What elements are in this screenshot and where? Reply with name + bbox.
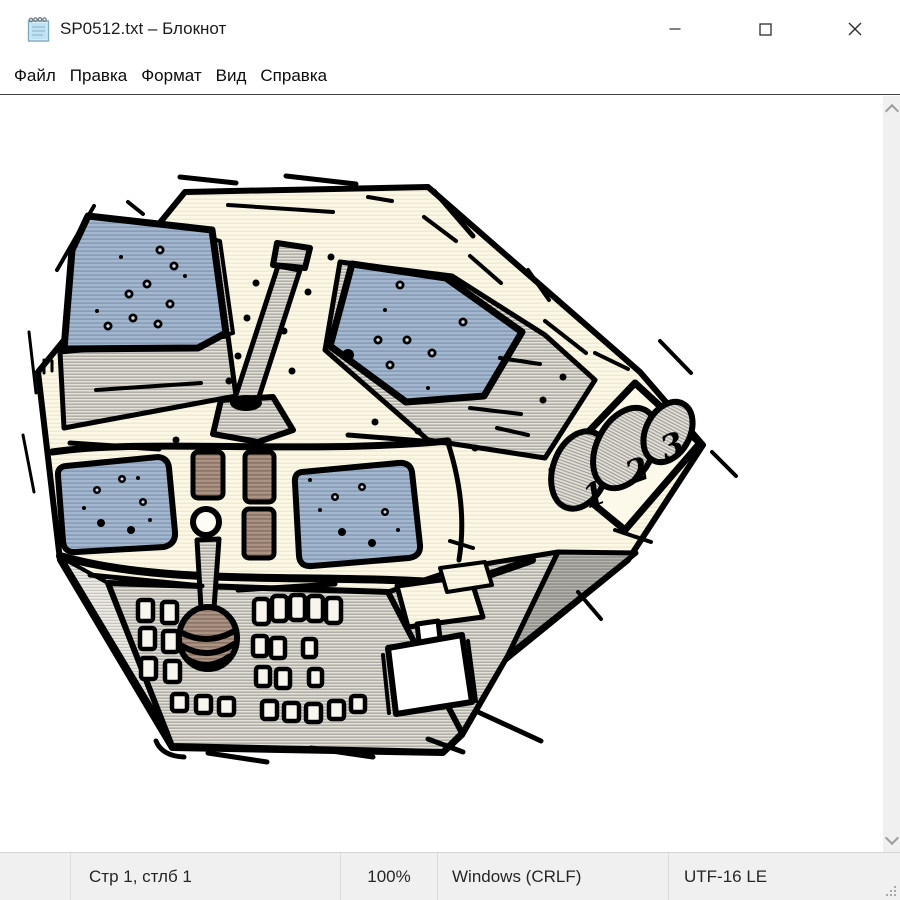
menu-bar: Файл Правка Формат Вид Справка (0, 58, 900, 94)
notepad-icon (26, 16, 51, 43)
maximize-icon (759, 23, 772, 36)
menu-view[interactable]: Вид (209, 66, 254, 86)
status-bar: Стр 1, стлб 1 100% Windows (CRLF) UTF-16… (0, 852, 900, 900)
menu-format[interactable]: Формат (134, 66, 208, 86)
text-editor-area[interactable] (0, 94, 900, 852)
status-encoding: UTF-16 LE (684, 867, 767, 887)
window-controls (630, 0, 900, 58)
vertical-scrollbar[interactable] (883, 96, 900, 852)
menu-file[interactable]: Файл (7, 66, 63, 86)
minimize-button[interactable] (630, 0, 720, 58)
status-spacer (0, 853, 71, 900)
close-button[interactable] (810, 0, 900, 58)
close-icon (848, 22, 862, 36)
menu-edit[interactable]: Правка (63, 66, 134, 86)
chevron-up-icon (884, 104, 898, 118)
title-bar: SP0512.txt – Блокнот (0, 0, 900, 58)
status-cursor-position: Стр 1, стлб 1 (71, 853, 341, 900)
notepad-window: SP0512.txt – Блокнот Файл Правка Формат … (0, 0, 900, 900)
menu-help[interactable]: Справка (253, 66, 334, 86)
status-line-endings: Windows (CRLF) (438, 853, 669, 900)
status-zoom-level: 100% (341, 853, 438, 900)
maximize-button[interactable] (720, 0, 810, 58)
window-title: SP0512.txt – Блокнот (60, 19, 226, 39)
status-encoding-cell: UTF-16 LE (669, 853, 900, 900)
scroll-up-button[interactable] (883, 96, 900, 120)
minimize-icon (669, 23, 681, 35)
chevron-down-icon (884, 831, 898, 845)
scroll-down-button[interactable] (883, 828, 900, 852)
resize-grip[interactable] (883, 883, 897, 897)
